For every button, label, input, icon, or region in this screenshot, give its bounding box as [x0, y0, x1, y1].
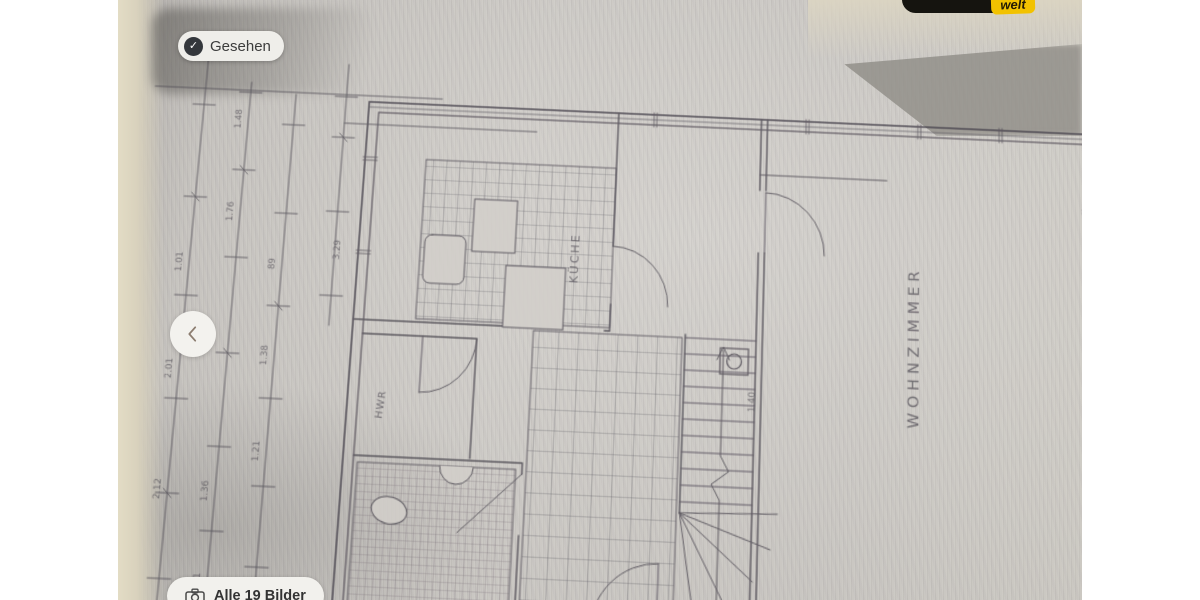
floorplan-drawing: 1.48 1.76 89 3.29 1.01 2.01 1.38 1.21 1.…: [118, 0, 1082, 600]
kitchen-area: [415, 160, 616, 332]
watermark-text: welt: [1000, 0, 1026, 14]
svg-text:1.21: 1.21: [249, 440, 261, 461]
svg-text:89: 89: [266, 258, 277, 270]
chevron-left-icon: [176, 311, 210, 357]
utility-room-label: HWR: [373, 390, 389, 420]
svg-text:1.76: 1.76: [224, 201, 236, 221]
all-images-button[interactable]: Alle 19 Bilder: [167, 577, 324, 600]
svg-text:3.29: 3.29: [331, 240, 343, 260]
seen-badge: ✓ Gesehen: [178, 31, 284, 61]
camera-icon: [185, 588, 205, 600]
check-icon: ✓: [184, 37, 203, 56]
watermark-yellow-pill: welt: [991, 0, 1036, 15]
prev-image-button[interactable]: [170, 311, 216, 357]
kitchen-label: KÜCHE: [567, 233, 583, 284]
hall-tiles: [518, 331, 682, 600]
floorplan-photo[interactable]: 1.48 1.76 89 3.29 1.01 2.01 1.38 1.21 1.…: [118, 0, 1082, 600]
living-room-label: WOHNZIMMER: [906, 266, 924, 429]
svg-text:1.38: 1.38: [258, 345, 270, 366]
svg-text:1.36: 1.36: [198, 480, 211, 502]
svg-text:2.12: 2.12: [151, 478, 164, 500]
bathroom-area: [346, 462, 515, 600]
fixture-symbol: [720, 348, 749, 375]
all-images-label: Alle 19 Bilder: [214, 588, 306, 600]
svg-text:1.01: 1.01: [173, 251, 185, 271]
svg-text:1.40: 1.40: [746, 391, 757, 412]
staircase: [676, 338, 781, 600]
svg-text:1.48: 1.48: [232, 109, 244, 129]
seen-badge-label: Gesehen: [210, 38, 271, 55]
svg-text:2.01: 2.01: [162, 358, 174, 379]
